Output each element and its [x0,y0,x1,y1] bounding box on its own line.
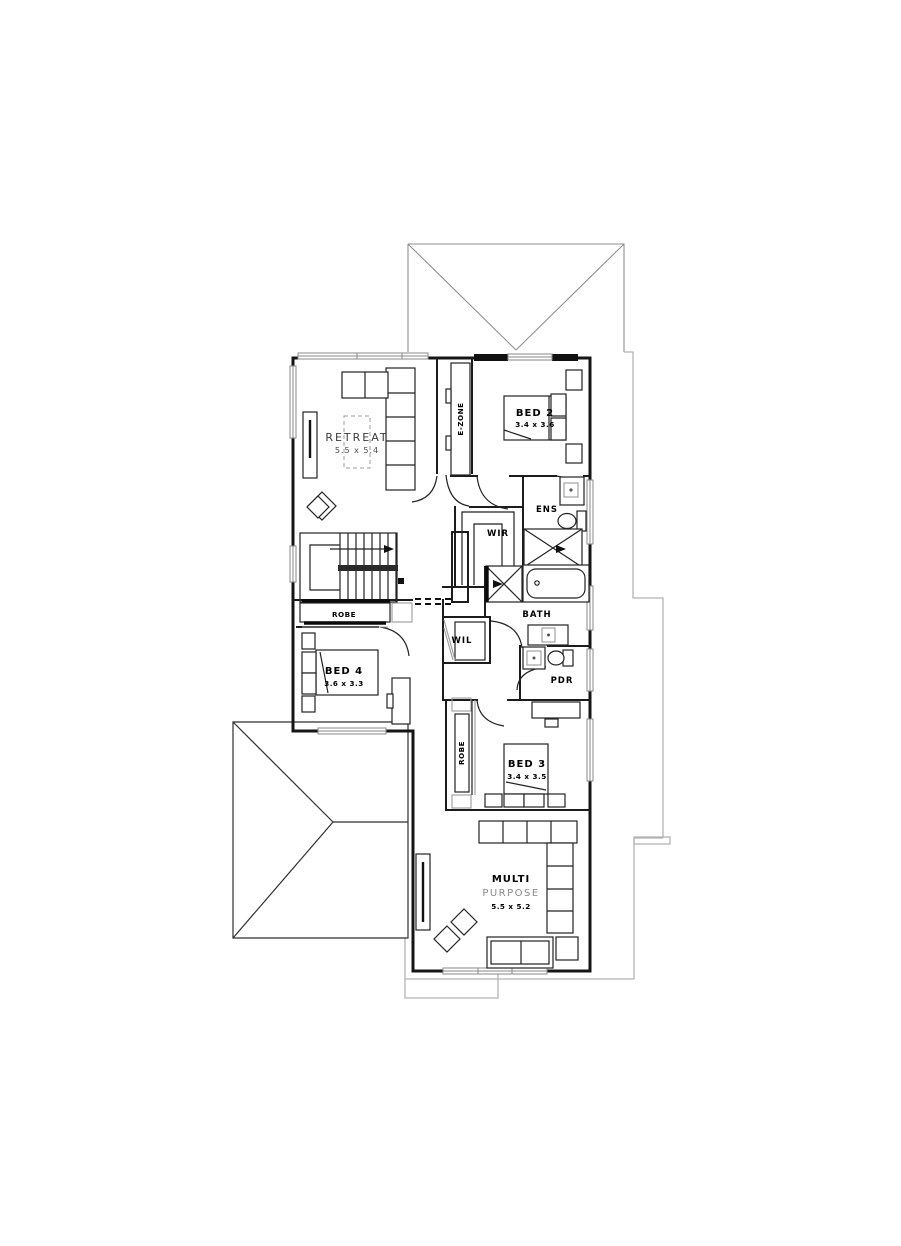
room-dims-bed3: 3.4 x 3.5 [507,772,547,781]
floor-plan-page: RETREAT 5.5 x 5.4 BED 2 3.4 x 3.6 E-ZONE… [0,0,901,1246]
multi-ottoman [487,937,553,968]
room-dims-retreat: 5.5 x 5.4 [335,446,379,455]
staircase [300,533,404,602]
roof-outline-top [408,244,624,352]
wall-fill-segment [552,354,578,361]
room-dims-multi: 5.5 x 5.2 [491,902,531,911]
room-label-retreat: RETREAT [325,431,388,444]
room-label-bath: BATH [522,610,551,620]
bed3-desk [532,702,580,718]
room-label-bed2: BED 2 [516,408,554,419]
floor-plan-svg: RETREAT 5.5 x 5.4 BED 2 3.4 x 3.6 E-ZONE… [0,0,901,1246]
room-label-bed3: BED 3 [508,759,546,770]
bathroom-fixtures [486,565,589,645]
room-dims-bed4: 3.6 x 3.3 [324,679,364,688]
bed3-furniture [452,698,580,808]
powder-fixtures [523,647,573,669]
wall-fill-segment [474,354,508,361]
ground-floor-outline [405,352,670,998]
room-label-bed4: BED 4 [325,666,363,677]
room-label-ens: ENS [536,505,558,515]
multi-chair [451,909,477,935]
room-label-ezone: E-ZONE [456,402,465,435]
bath-tub [523,565,589,602]
void-dashed-line [415,599,452,604]
ensuite-fixtures [524,477,586,567]
room-dims-bed2: 3.4 x 3.6 [515,420,555,429]
room-label-wir: WIR [487,529,509,539]
room-label-multi-line2: PURPOSE [482,888,539,899]
room-label-pdr: PDR [551,676,574,686]
room-label-robe-bed4: ROBE [332,610,356,619]
roof-outline-left [233,722,408,938]
room-label-multi-line1: MULTI [492,874,530,885]
bed4-desk [392,678,410,724]
ens-toilet [577,511,586,531]
room-label-robe-bed3: ROBE [457,741,466,765]
stair-handrail [338,565,398,571]
retreat-furniture [303,368,415,520]
multi-chair [434,926,460,952]
room-label-wil: WIL [452,636,473,646]
